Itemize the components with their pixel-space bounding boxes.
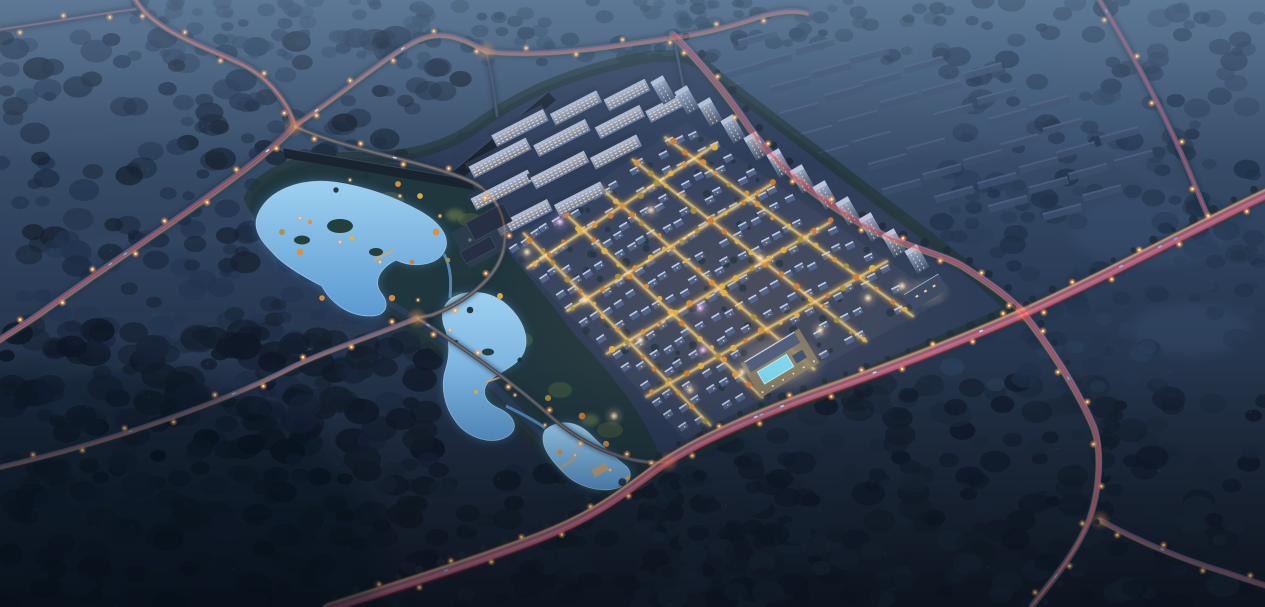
atmosphere [0,0,1265,607]
scene-canvas [0,0,1265,607]
aerial-night-rendering [0,0,1265,607]
